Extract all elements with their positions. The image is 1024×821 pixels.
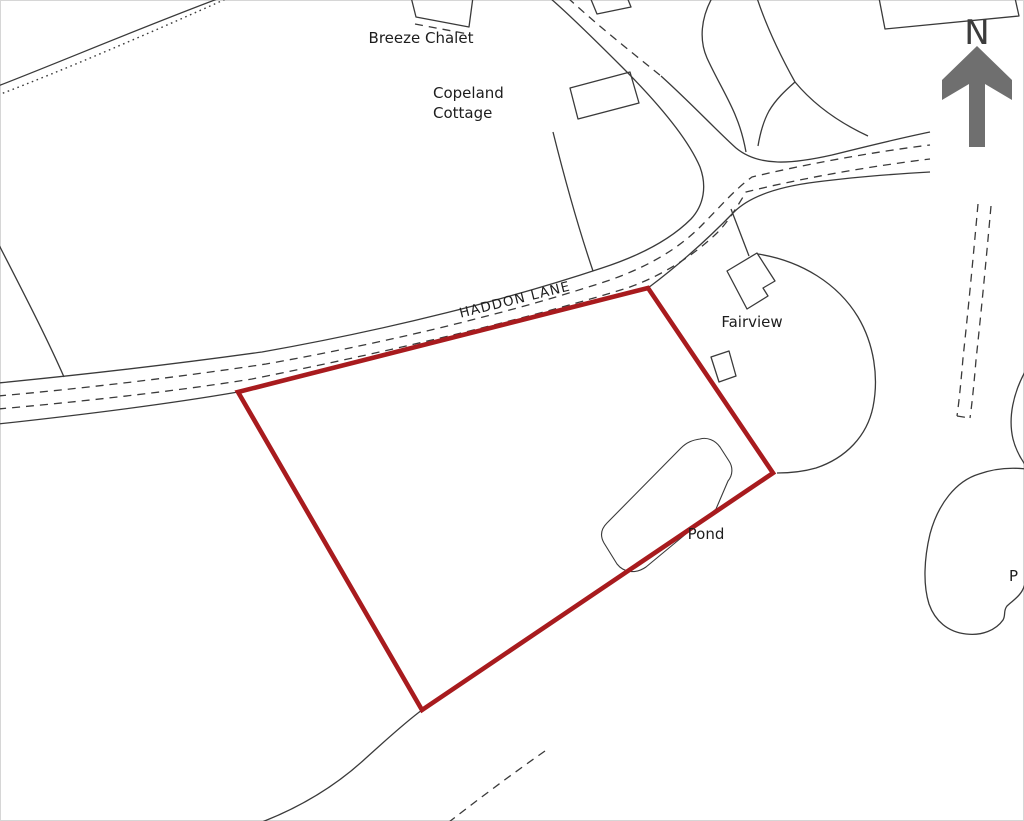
site-plan-map: Breeze Chalet Copeland Cottage HADDON LA… bbox=[0, 0, 1024, 821]
north-arrow-icon bbox=[942, 46, 1012, 147]
field-boundary-bottom bbox=[262, 710, 422, 821]
field-boundary-topleft-dotted bbox=[0, 0, 228, 95]
breeze-chalet-building bbox=[411, 0, 473, 27]
label-breeze-chalet: Breeze Chalet bbox=[369, 29, 474, 47]
label-pond: Pond bbox=[688, 525, 725, 543]
driveway-outline-east bbox=[757, 0, 795, 146]
track-right-end-cap bbox=[957, 416, 970, 418]
label-haddon-lane: HADDON LANE bbox=[458, 279, 573, 322]
track-east-edge-to-road-top-ne bbox=[661, 76, 930, 162]
copeland-cottage-building bbox=[570, 72, 639, 119]
fairview-house bbox=[727, 253, 775, 309]
field-boundary-topleft-solid bbox=[0, 0, 220, 86]
road-centerline-dashed-1 bbox=[0, 145, 930, 396]
label-pond-clipped: P bbox=[1009, 567, 1018, 585]
plot-boundary-red bbox=[238, 288, 773, 710]
track-right-dashed-west bbox=[957, 204, 978, 416]
right-edge-boundary-wiggle bbox=[1011, 370, 1024, 466]
site-plan-canvas: Breeze Chalet Copeland Cottage HADDON LA… bbox=[0, 0, 1024, 821]
fairview-outbuilding bbox=[711, 351, 736, 382]
north-arrow: N bbox=[942, 13, 1012, 147]
pond-outline-bottom-right bbox=[925, 468, 1024, 634]
building-top-middle bbox=[590, 0, 631, 14]
field-boundary-left bbox=[0, 243, 64, 377]
road-bottom-edge bbox=[0, 172, 930, 424]
driveway-outline-west bbox=[702, 0, 746, 152]
field-boundary-bottom-dashed bbox=[449, 751, 545, 821]
track-right-dashed-east bbox=[970, 206, 991, 418]
copeland-plot-boundary bbox=[553, 132, 593, 271]
track-east-edge-dashed bbox=[568, 0, 661, 76]
building-top-right bbox=[879, 0, 1019, 29]
fairview-plot-boundary-arc bbox=[758, 254, 875, 473]
road-centerline-dashed-2 bbox=[0, 159, 930, 409]
fairview-plot-connector bbox=[731, 209, 749, 256]
driveway-outline-branch bbox=[795, 82, 868, 136]
pond-outline bbox=[602, 438, 732, 571]
label-copeland-line1: Copeland bbox=[433, 84, 504, 102]
label-copeland-line2: Cottage bbox=[433, 104, 492, 122]
road-top-edge-and-track-west bbox=[0, 0, 704, 383]
label-fairview: Fairview bbox=[721, 313, 782, 331]
